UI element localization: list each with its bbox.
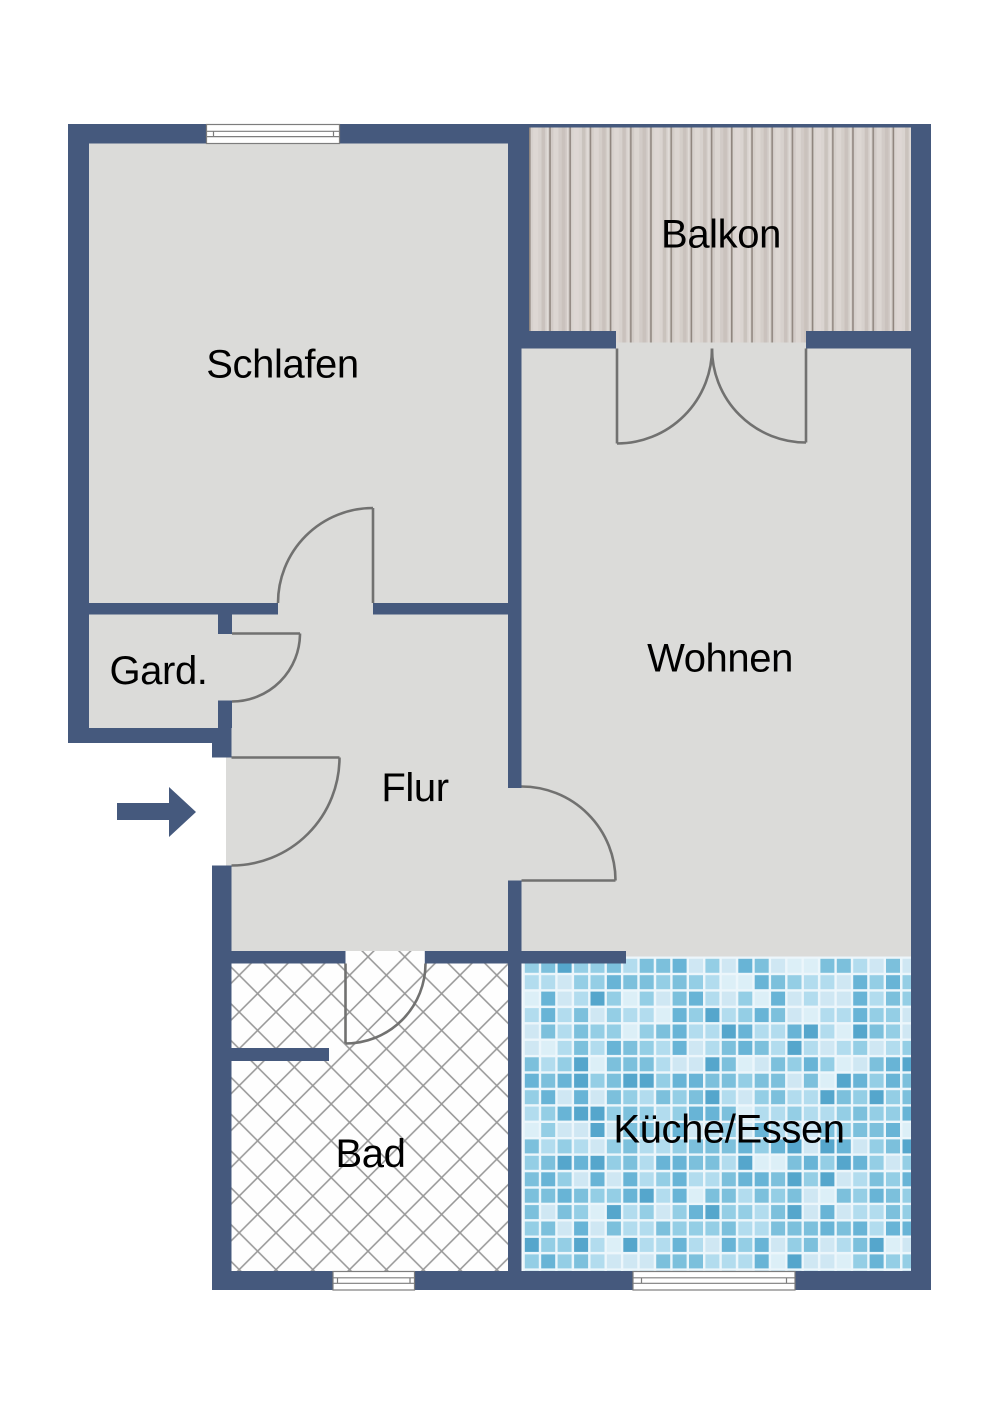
svg-text:Flur: Flur <box>381 766 448 810</box>
svg-text:Bad: Bad <box>336 1132 406 1176</box>
svg-text:Küche/Essen: Küche/Essen <box>613 1108 844 1152</box>
svg-text:Balkon: Balkon <box>661 213 781 257</box>
svg-text:Wohnen: Wohnen <box>647 637 793 681</box>
svg-text:Gard.: Gard. <box>109 649 207 693</box>
svg-text:Schlafen: Schlafen <box>206 343 358 387</box>
